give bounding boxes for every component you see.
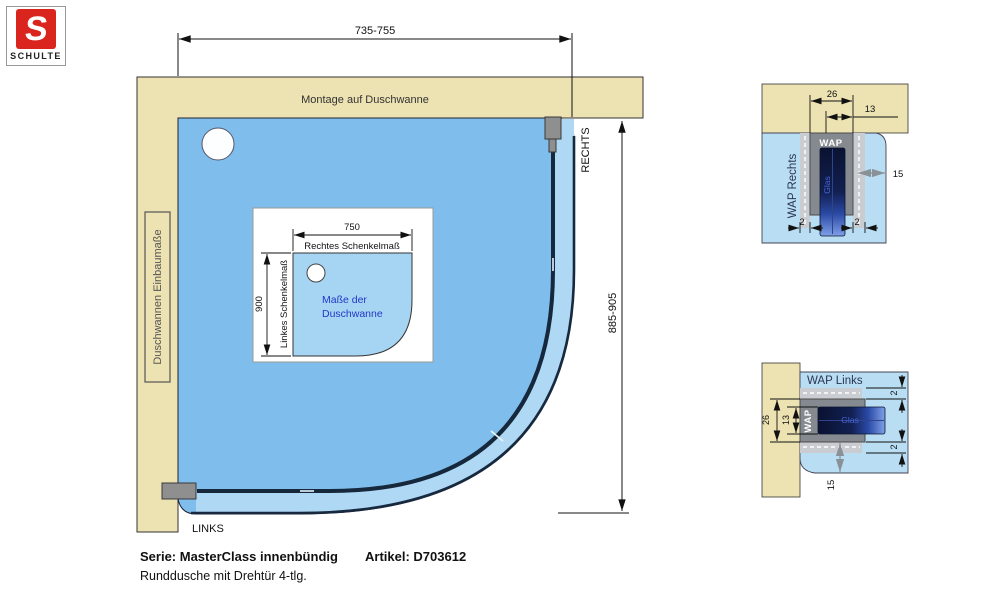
inset-drain-circle — [307, 264, 325, 282]
corner-left-label: LINKS — [192, 523, 224, 535]
detail-wap-links: WAP Glas WAP Links 26 13 2 2 — [761, 363, 908, 497]
detail-r-dim-2-left-label: 2 — [799, 217, 804, 227]
inset-tray-diagram: 750 Rechtes Schenkelmaß 900 Linkes Schen… — [253, 208, 433, 362]
detail-l-wall — [762, 363, 800, 497]
main-drawing: 735-755 885-905 Montage auf Duschwanne D… — [137, 25, 643, 535]
detail-l-dim-2-top-label: 2 — [889, 390, 899, 395]
detail-l-title: WAP Links — [807, 375, 863, 387]
detail-l-profile-label: WAP — [803, 409, 814, 432]
dim-height-label: 885-905 — [607, 293, 619, 333]
article-label: Artikel: D703612 — [365, 549, 466, 564]
detail-l-dim-2-bottom-label: 2 — [889, 444, 899, 449]
detail-r-dim-13-label: 13 — [865, 104, 876, 115]
detail-l-dim-15-label: 15 — [826, 480, 837, 491]
product-description: Runddusche mit Drehtür 4-tlg. — [140, 569, 307, 583]
detail-r-title: WAP Rechts — [787, 153, 799, 218]
detail-r-glass-label: Glas — [822, 176, 832, 193]
detail-wap-rechts: WAP Glas WAP Rechts 26 13 15 2 — [762, 84, 908, 243]
wall-top-label: Montage auf Duschwanne — [301, 94, 429, 106]
detail-r-dim-26-label: 26 — [827, 89, 838, 100]
hinge-bottom — [162, 483, 196, 499]
inset-center-label-2: Duschwanne — [322, 308, 383, 320]
detail-l-glass-label: Glas — [841, 415, 858, 425]
series-label: Serie: MasterClass innenbündig — [140, 549, 338, 564]
inset-left-label: Linkes Schenkelmaß — [279, 260, 290, 348]
detail-l-dim-26-label: 26 — [761, 415, 771, 425]
shower-head-circle — [202, 128, 234, 160]
inset-dim-width-label: 750 — [344, 222, 360, 233]
detail-r-profile-label: WAP — [819, 138, 842, 149]
detail-r-dim-2-right-label: 2 — [854, 217, 859, 227]
inset-center-label-1: Maße der — [322, 294, 367, 306]
inset-top-label: Rechtes Schenkelmaß — [304, 241, 400, 252]
wall-left-label: Duschwannen Einbaumaße — [152, 229, 164, 364]
detail-l-dim-13-label: 13 — [781, 415, 791, 425]
corner-right-label: RECHTS — [580, 127, 592, 172]
dim-width-label: 735-755 — [355, 25, 395, 37]
inset-dim-height-label: 900 — [254, 296, 265, 312]
detail-r-dim-15-label: 15 — [893, 169, 904, 180]
technical-drawing: 735-755 885-905 Montage auf Duschwanne D… — [0, 0, 1000, 600]
